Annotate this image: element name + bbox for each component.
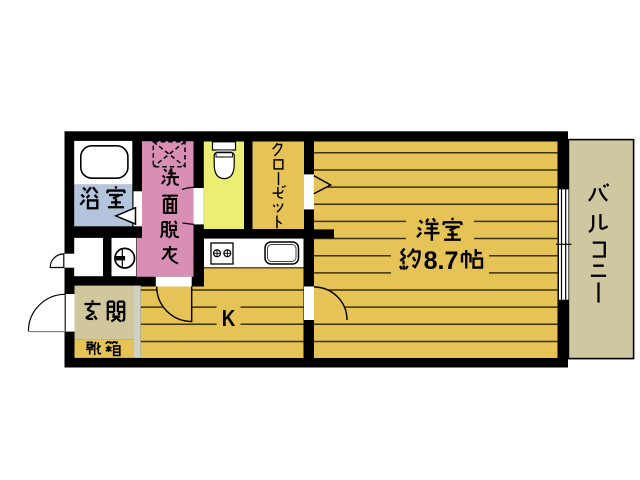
- svg-text:8.7: 8.7: [424, 247, 459, 275]
- svg-text:K: K: [222, 305, 236, 332]
